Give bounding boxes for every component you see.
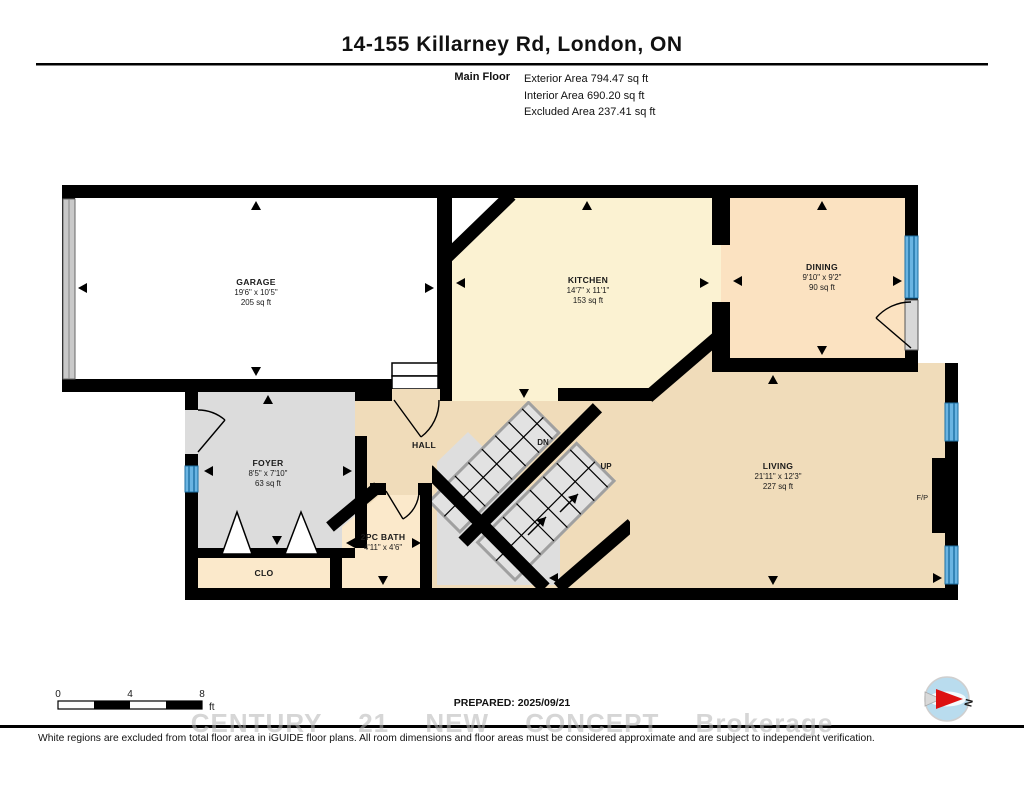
dining-area: 90 sq ft (809, 283, 836, 292)
kitchen-name: KITCHEN (568, 275, 608, 285)
garage-area: 205 sq ft (241, 298, 272, 307)
stairs-up-label: UP (600, 462, 612, 471)
bath-name: 2PC BATH (361, 532, 406, 542)
window-living-lower (945, 546, 958, 584)
brokerage-watermark: CENTURY 21 NEW CONCEPT Brokerage (0, 708, 1024, 739)
window-dining (905, 236, 918, 298)
window-foyer (185, 466, 198, 492)
interior-area: Interior Area 690.20 sq ft (524, 88, 655, 105)
dining-opening (721, 245, 730, 302)
kitchen-dims: 14'7" x 11'1" (567, 286, 610, 295)
fireplace-label: F/P (917, 493, 929, 502)
garage-dims: 19'6" x 10'5" (234, 288, 277, 297)
floor-plan: F/P (0, 0, 1024, 791)
fireplace (932, 458, 946, 533)
header-rule (36, 63, 988, 66)
floor-label: Main Floor (400, 71, 510, 83)
kitchen-opening (712, 245, 721, 302)
dining-dims: 9'10" x 9'2" (803, 273, 842, 282)
exterior-area: Exterior Area 794.47 sq ft (524, 71, 655, 88)
bath-dims: 4'11" x 4'6" (364, 543, 402, 552)
page-title: 14-155 Killarney Rd, London, ON (0, 33, 1024, 57)
garage-door (63, 199, 75, 379)
living-dims: 21'11" x 12'3" (754, 472, 801, 481)
stairs-down-label: DN (537, 438, 549, 447)
dining-name: DINING (806, 262, 838, 272)
foyer-dims: 8'5" x 7'10" (249, 469, 288, 478)
hall-name: HALL (412, 440, 436, 450)
floorplan-page: F/P (0, 0, 1024, 791)
foyer-name: FOYER (252, 458, 284, 468)
garage-name: GARAGE (236, 277, 276, 287)
living-area: 227 sq ft (763, 482, 794, 491)
kitchen-area: 153 sq ft (573, 296, 604, 305)
closet-name: CLO (254, 568, 273, 578)
area-stats: Exterior Area 794.47 sq ft Interior Area… (524, 71, 655, 121)
living-name: LIVING (763, 461, 793, 471)
foyer-area: 63 sq ft (255, 479, 282, 488)
excluded-area: Excluded Area 237.41 sq ft (524, 104, 655, 121)
window-living-upper (945, 403, 958, 441)
entry-steps (392, 363, 438, 389)
